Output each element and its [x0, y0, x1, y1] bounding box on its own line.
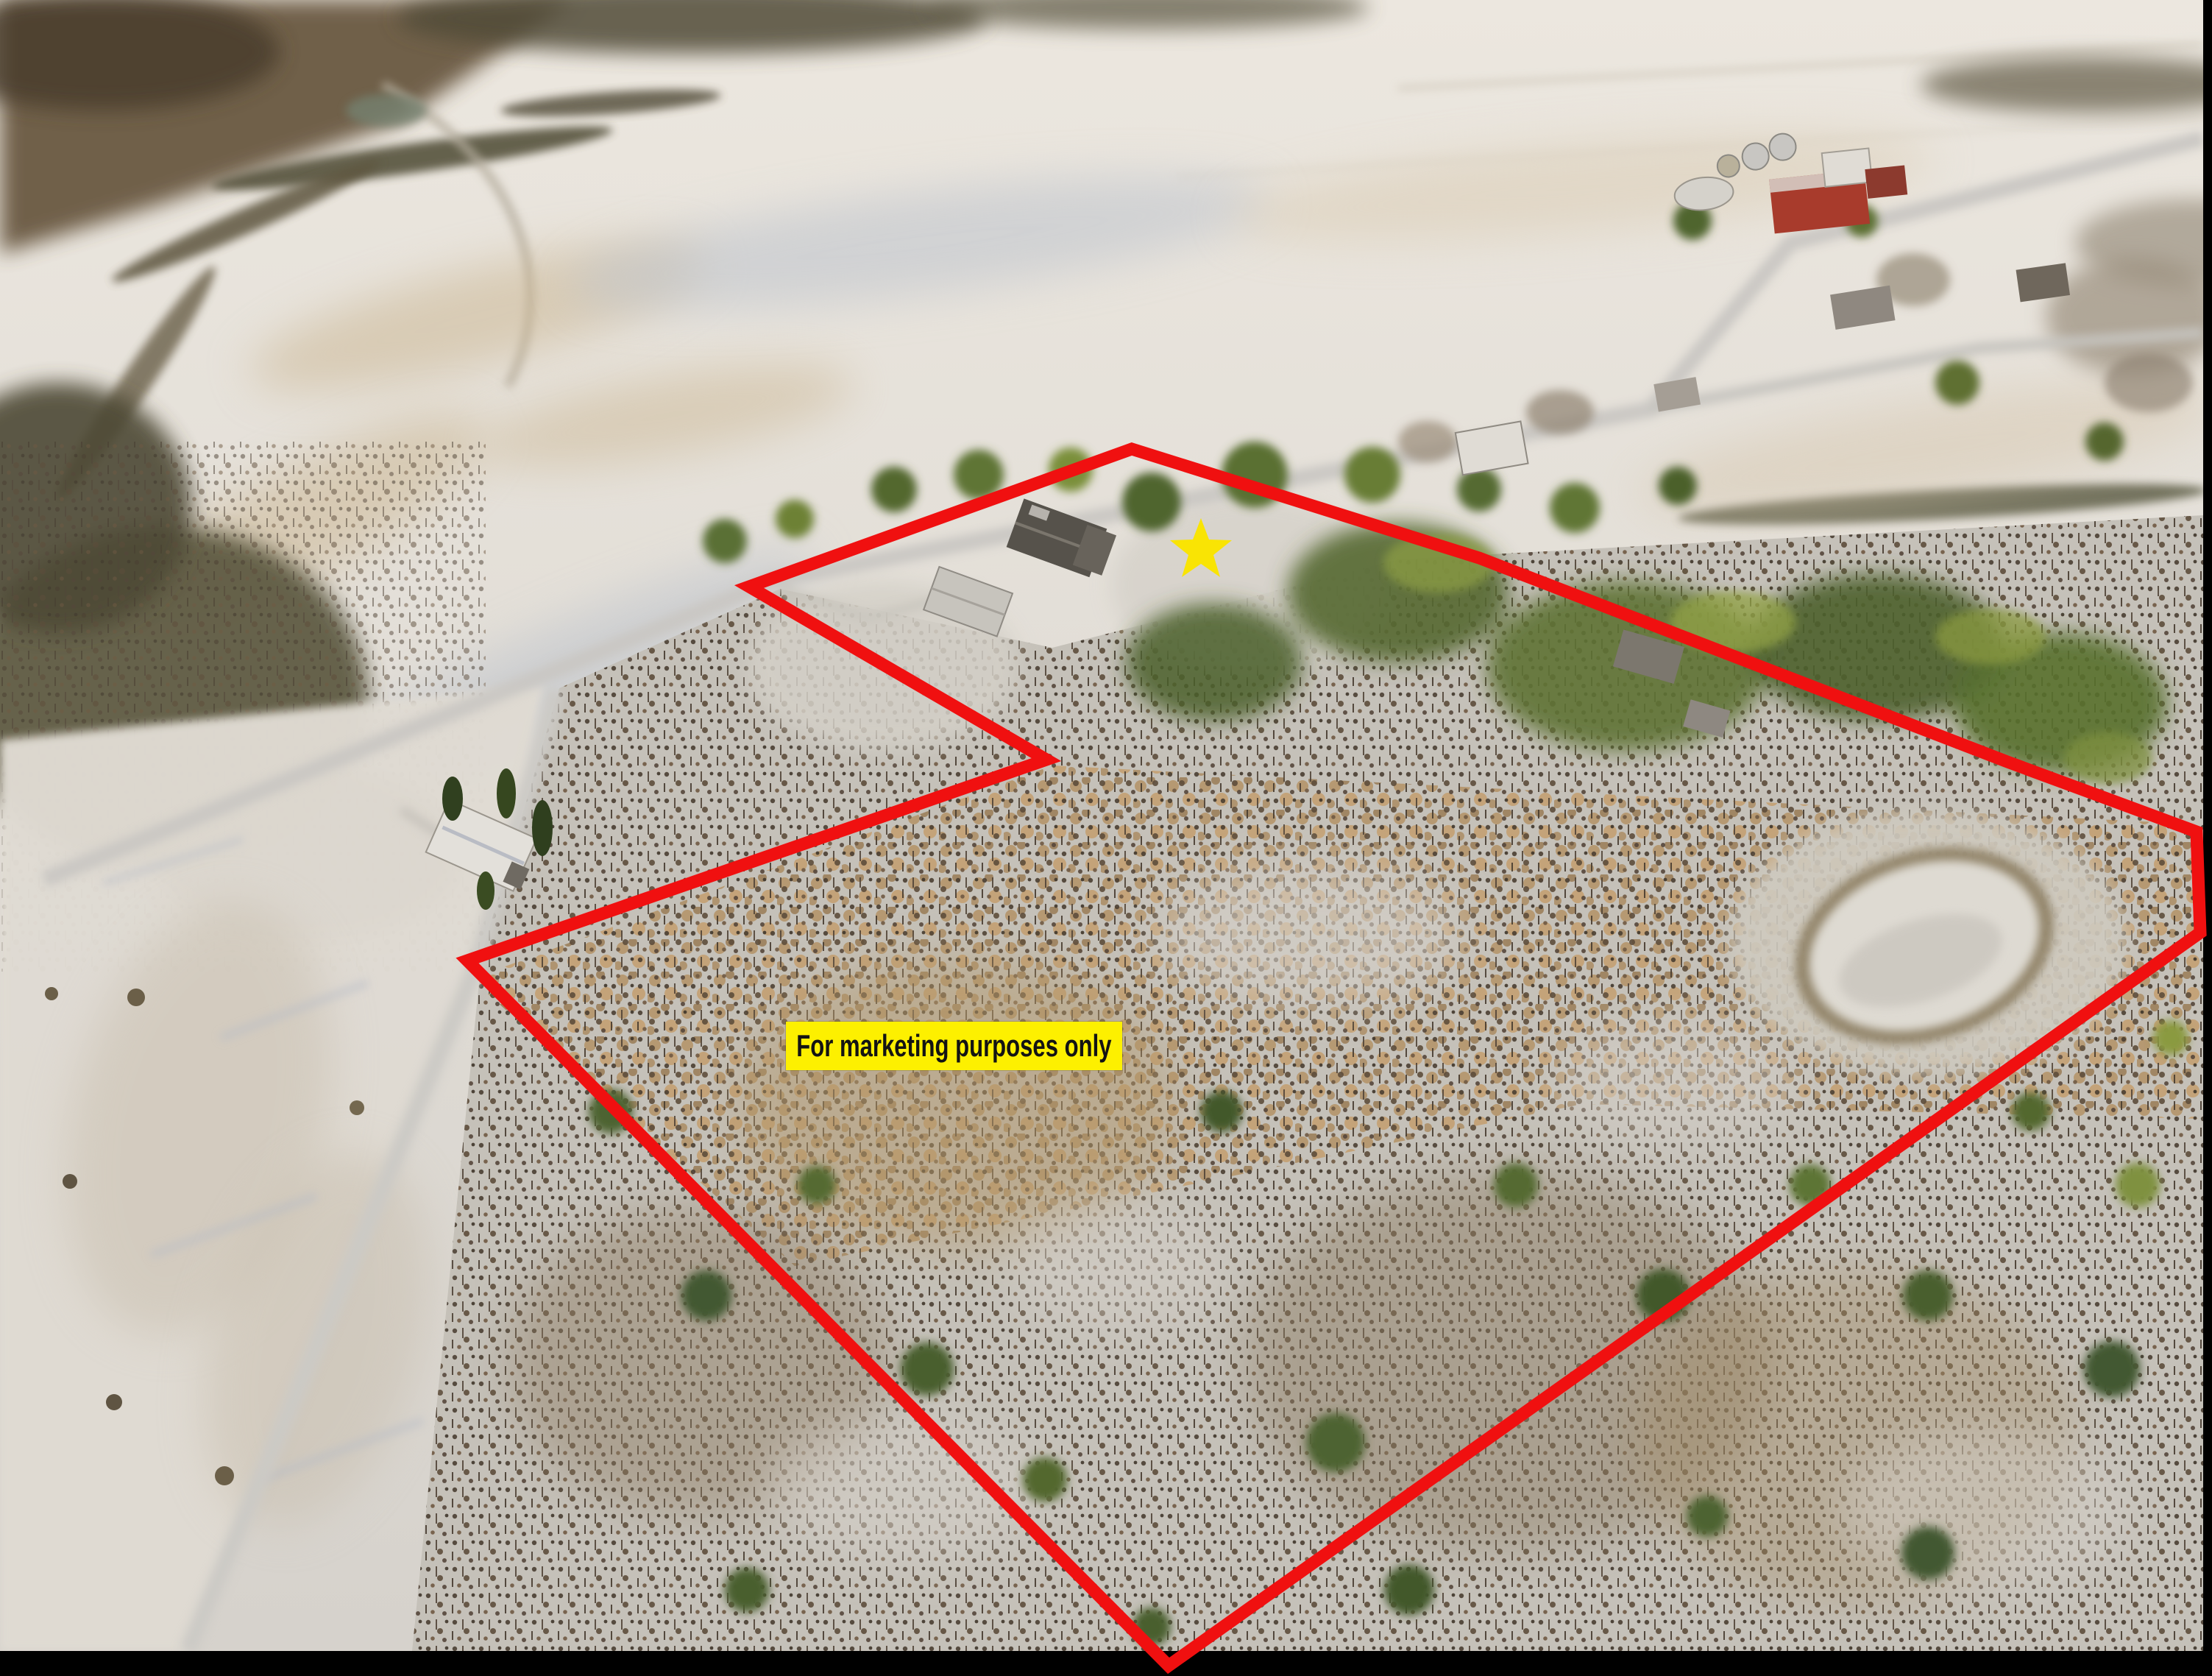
- disclaimer-text: For marketing purposes only: [796, 1028, 1111, 1064]
- road-house: [2016, 263, 2070, 302]
- scene-svg: [0, 0, 2212, 1676]
- pond: [1729, 810, 2127, 1076]
- screenshot-root: For marketing purposes only: [0, 0, 2212, 1676]
- aerial-photo: [0, 0, 2212, 1651]
- disclaimer-label: For marketing purposes only: [786, 1022, 1122, 1070]
